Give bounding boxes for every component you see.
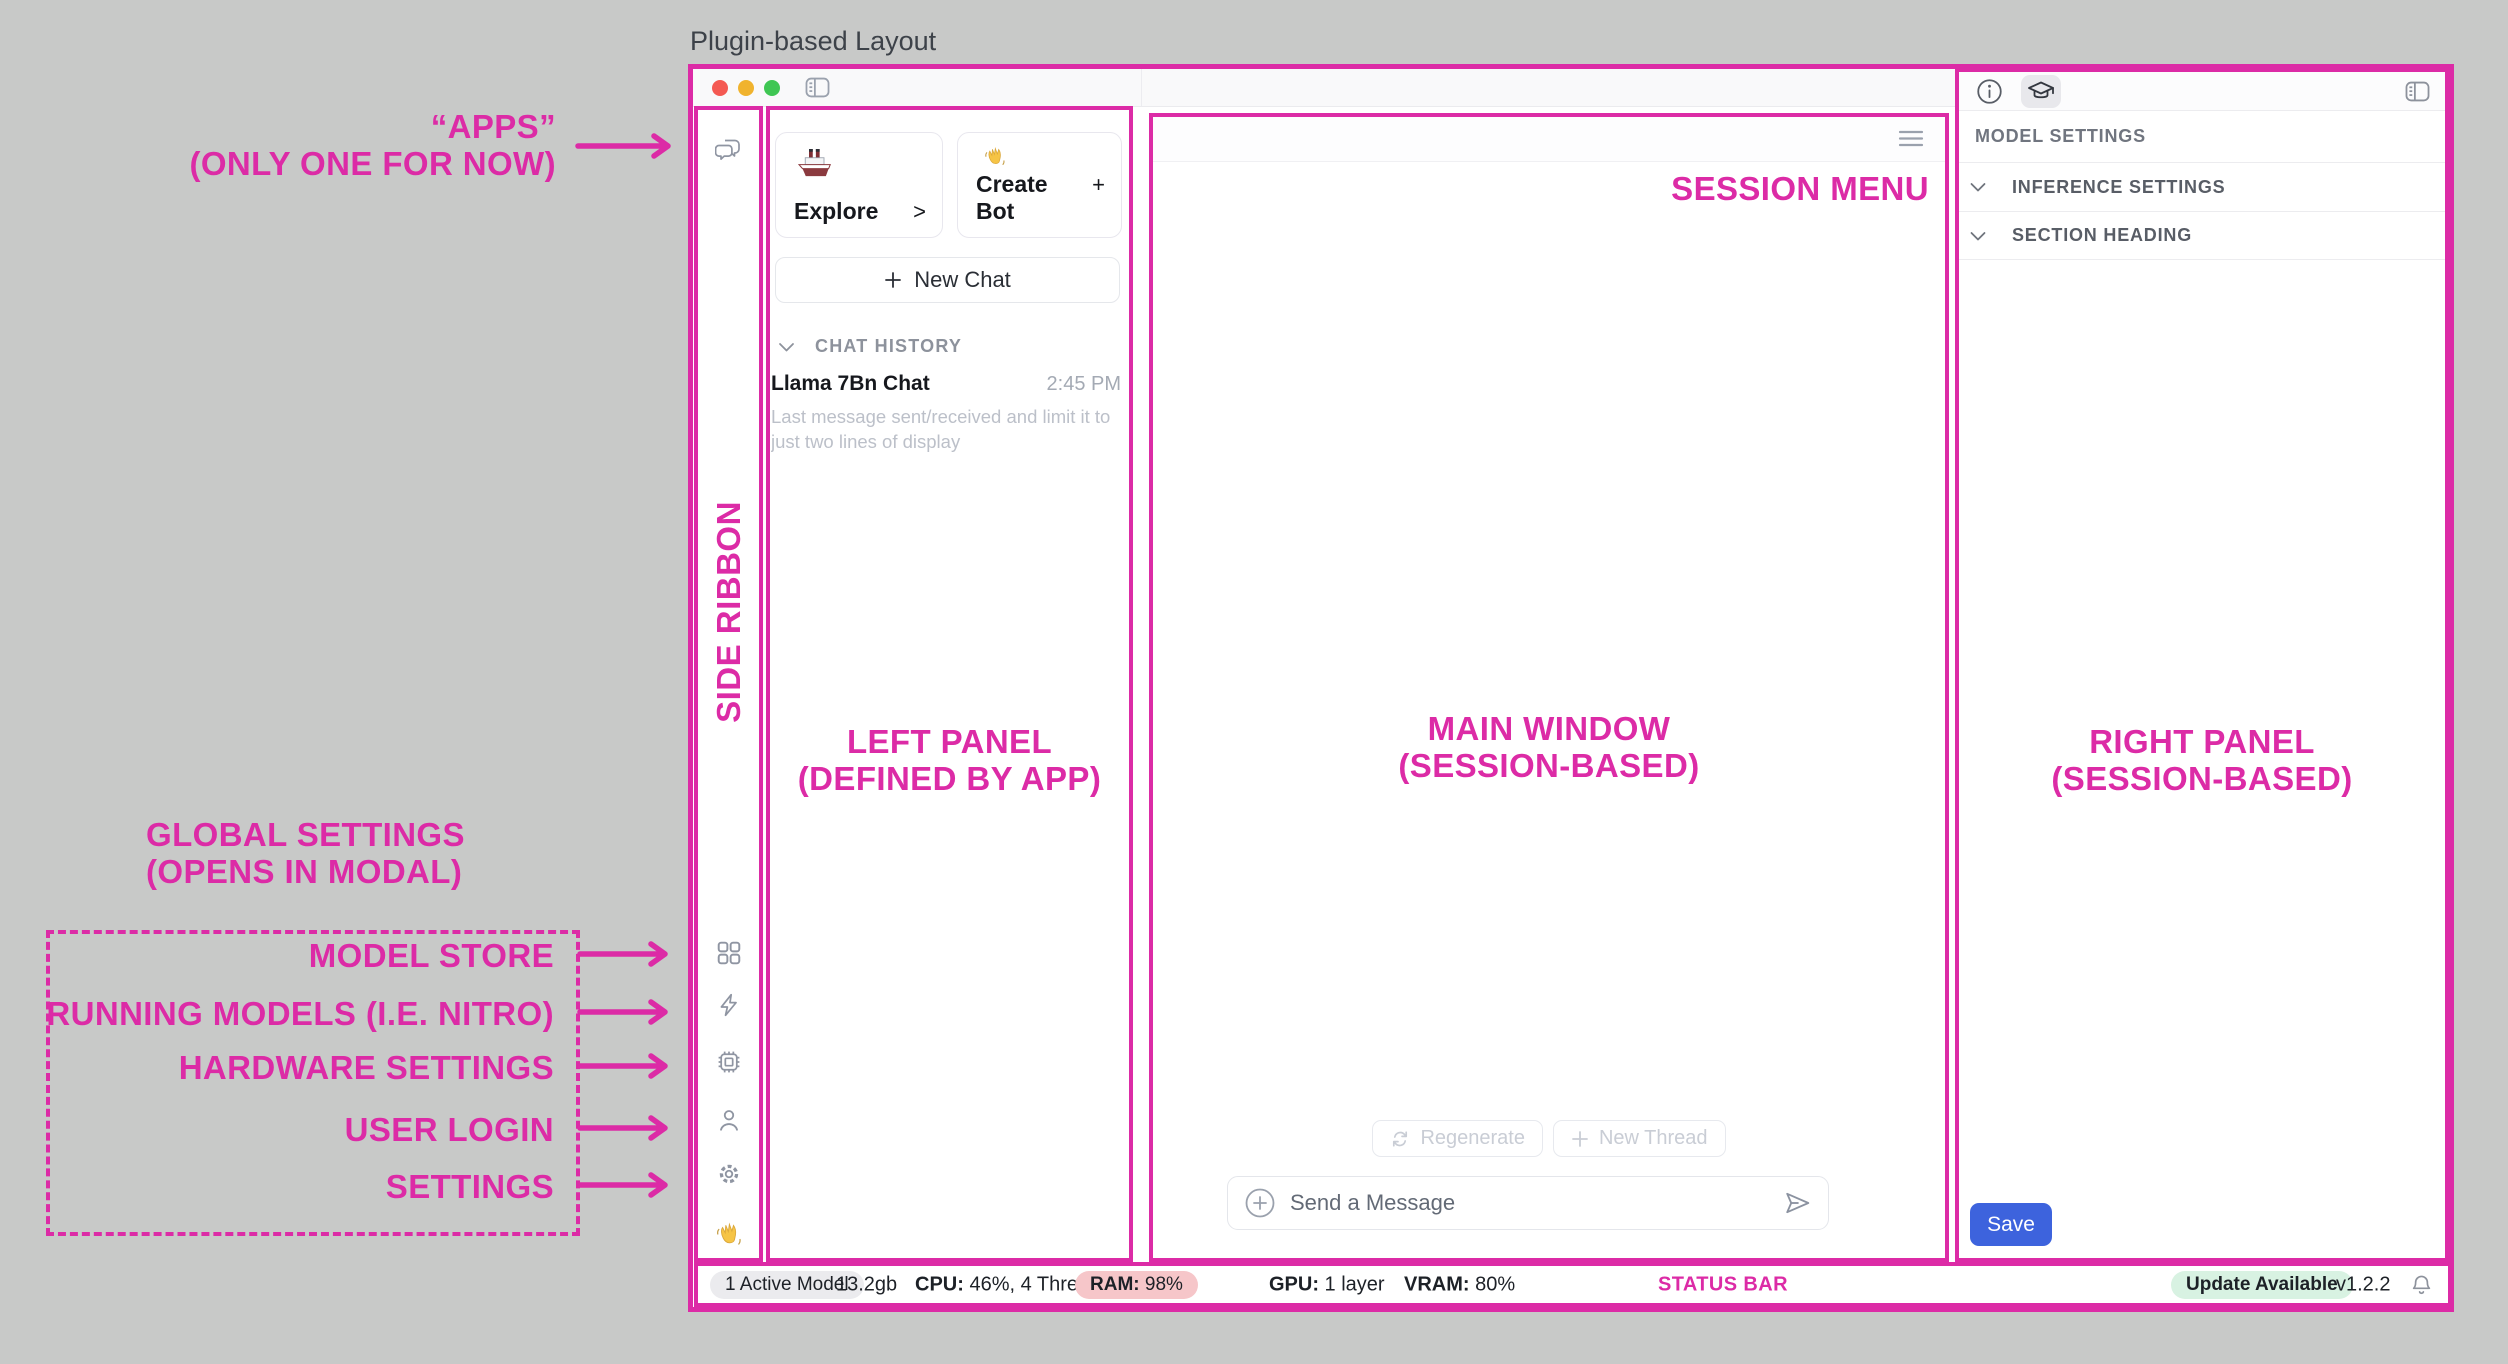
refresh-icon xyxy=(1390,1129,1410,1149)
right-panel-annotation: RIGHT PANEL (SESSION-BASED) xyxy=(1959,723,2445,797)
settings-annotation: SETTINGS xyxy=(386,1168,554,1205)
gear-icon xyxy=(716,1161,742,1187)
annotation-arrow xyxy=(578,1052,678,1080)
section-heading-label: SECTION HEADING xyxy=(2012,225,2192,246)
right-panel-header xyxy=(1959,72,2445,111)
left-panel: Explore > Create Bot + New Chat xyxy=(766,106,1133,1262)
ram-badge: RAM: 98% xyxy=(1075,1271,1198,1299)
zoom-button[interactable] xyxy=(764,80,780,96)
chat-list-item[interactable]: Llama 7Bn Chat 2:45 PM Last message sent… xyxy=(771,372,1127,454)
explore-label: Explore xyxy=(794,198,878,225)
left-panel-annotation: LEFT PANEL (DEFINED BY APP) xyxy=(770,723,1129,797)
chat-app-button[interactable] xyxy=(715,137,743,163)
plus-icon xyxy=(1571,1130,1589,1148)
annotation-arrow xyxy=(578,1171,678,1199)
model-store-annotation: MODEL STORE xyxy=(309,937,554,974)
send-icon xyxy=(1783,1190,1812,1216)
model-settings-label: MODEL SETTINGS xyxy=(1975,126,2146,147)
inference-settings-section[interactable]: INFERENCE SETTINGS xyxy=(1959,163,2445,212)
new-thread-button[interactable]: New Thread xyxy=(1553,1120,1726,1157)
session-menu-annotation: SESSION MENU xyxy=(1671,170,1929,207)
gpu-stat: GPU: 1 layer xyxy=(1269,1273,1385,1296)
regenerate-button[interactable]: Regenerate xyxy=(1372,1120,1543,1157)
chat-title: Llama 7Bn Chat xyxy=(771,372,930,396)
canvas: Plugin-based Layout SIDE RIBBON xyxy=(0,0,2508,1364)
hardware-settings-button[interactable] xyxy=(716,1049,742,1075)
side-ribbon-annotation: SIDE RIBBON xyxy=(710,501,748,723)
sidebar-toggle-icon xyxy=(2404,81,2431,102)
titlebar-divider xyxy=(1141,69,1142,106)
right-panel: MODEL SETTINGS INFERENCE SETTINGS SECTIO… xyxy=(1955,68,2449,1262)
new-chat-label: New Chat xyxy=(914,267,1011,293)
save-button[interactable]: Save xyxy=(1970,1203,2052,1246)
version-label: v1.2.2 xyxy=(2336,1273,2390,1296)
chat-preview: Last message sent/received and limit it … xyxy=(771,404,1119,454)
chevron-down-icon xyxy=(778,341,795,353)
annotation-arrow xyxy=(578,998,678,1026)
chat-time: 2:45 PM xyxy=(1047,373,1121,396)
bell-icon xyxy=(2410,1273,2433,1296)
info-tab-button[interactable] xyxy=(1969,75,2009,108)
settings-button[interactable] xyxy=(716,1161,742,1187)
annotation-arrow xyxy=(578,940,678,968)
main-window: SESSION MENU MAIN WINDOW (SESSION-BASED)… xyxy=(1149,113,1949,1262)
wave-hand-icon xyxy=(976,145,1014,171)
wave-app-button[interactable] xyxy=(713,1220,745,1252)
chat-bubbles-icon xyxy=(715,137,743,163)
message-input[interactable]: Send a Message xyxy=(1290,1190,1769,1216)
hamburger-icon xyxy=(1897,128,1925,149)
chip-icon xyxy=(716,1049,742,1075)
inference-settings-label: INFERENCE SETTINGS xyxy=(2012,177,2225,198)
ship-icon xyxy=(794,145,834,183)
update-available-badge[interactable]: Update Available xyxy=(2171,1271,2353,1299)
person-icon xyxy=(716,1107,742,1133)
chevron-down-icon xyxy=(1969,181,1987,193)
minimize-button[interactable] xyxy=(738,80,754,96)
notifications-bell-button[interactable] xyxy=(2410,1273,2433,1296)
model-settings-header: MODEL SETTINGS xyxy=(1959,111,2445,163)
message-composer[interactable]: Send a Message xyxy=(1227,1176,1829,1230)
main-window-header xyxy=(1153,117,1945,162)
session-menu-button[interactable] xyxy=(1897,128,1925,154)
assistant-tab-button[interactable] xyxy=(2021,75,2061,108)
sidebar-toggle-icon xyxy=(804,77,831,98)
titlebar xyxy=(693,69,1955,107)
bolt-icon xyxy=(716,992,742,1018)
status-bar-annotation: STATUS BAR xyxy=(1658,1266,1788,1303)
regenerate-label: Regenerate xyxy=(1420,1127,1525,1150)
side-ribbon: SIDE RIBBON xyxy=(694,106,763,1262)
create-bot-plus: + xyxy=(1092,172,1105,198)
user-login-button[interactable] xyxy=(716,1107,742,1133)
user-login-annotation: USER LOGIN xyxy=(345,1111,554,1148)
running-models-annotation: RUNNING MODELS (I.E. NITRO) xyxy=(46,995,554,1032)
right-sidebar-toggle-button[interactable] xyxy=(2404,81,2431,102)
annotation-arrow xyxy=(575,132,681,160)
hardware-settings-annotation: HARDWARE SETTINGS xyxy=(179,1049,554,1086)
wave-hand-icon xyxy=(713,1220,745,1252)
chat-history-label: CHAT HISTORY xyxy=(815,336,962,357)
create-bot-label: Create Bot xyxy=(976,171,1092,225)
status-bar: 1 Active Model 13.2gb CPU: 46%, 4 Thread… xyxy=(694,1262,2452,1307)
create-bot-card[interactable]: Create Bot + xyxy=(957,132,1122,238)
attach-button[interactable] xyxy=(1244,1187,1276,1219)
new-chat-button[interactable]: New Chat xyxy=(775,257,1120,303)
apps-annotation: “APPS” (ONLY ONE FOR NOW) xyxy=(189,108,556,182)
running-models-button[interactable] xyxy=(716,992,742,1018)
plus-icon xyxy=(884,271,902,289)
new-thread-label: New Thread xyxy=(1599,1127,1708,1150)
plus-circle-icon xyxy=(1244,1187,1276,1219)
grid-icon xyxy=(716,940,742,966)
model-store-button[interactable] xyxy=(716,940,742,966)
explore-chevron: > xyxy=(913,199,926,225)
chat-history-header[interactable]: CHAT HISTORY xyxy=(778,336,962,357)
thread-actions: Regenerate New Thread xyxy=(1153,1120,1945,1157)
chevron-down-icon xyxy=(1969,230,1987,242)
explore-card[interactable]: Explore > xyxy=(775,132,943,238)
graduation-cap-icon xyxy=(2027,79,2055,103)
traffic-lights xyxy=(712,80,780,96)
page-title: Plugin-based Layout xyxy=(690,26,936,57)
vram-stat: VRAM: 80% xyxy=(1404,1273,1515,1296)
send-button[interactable] xyxy=(1783,1190,1812,1216)
main-window-annotation: MAIN WINDOW (SESSION-BASED) xyxy=(1153,710,1945,784)
model-size: 13.2gb xyxy=(836,1273,897,1296)
global-settings-annotation: GLOBAL SETTINGS (OPENS IN MODAL) xyxy=(146,816,465,890)
app-cards: Explore > Create Bot + xyxy=(775,132,1122,238)
info-icon xyxy=(1976,78,2003,105)
sidebar-toggle-button[interactable] xyxy=(804,77,831,98)
close-button[interactable] xyxy=(712,80,728,96)
annotation-arrow xyxy=(578,1114,678,1142)
section-heading-section[interactable]: SECTION HEADING xyxy=(1959,212,2445,260)
